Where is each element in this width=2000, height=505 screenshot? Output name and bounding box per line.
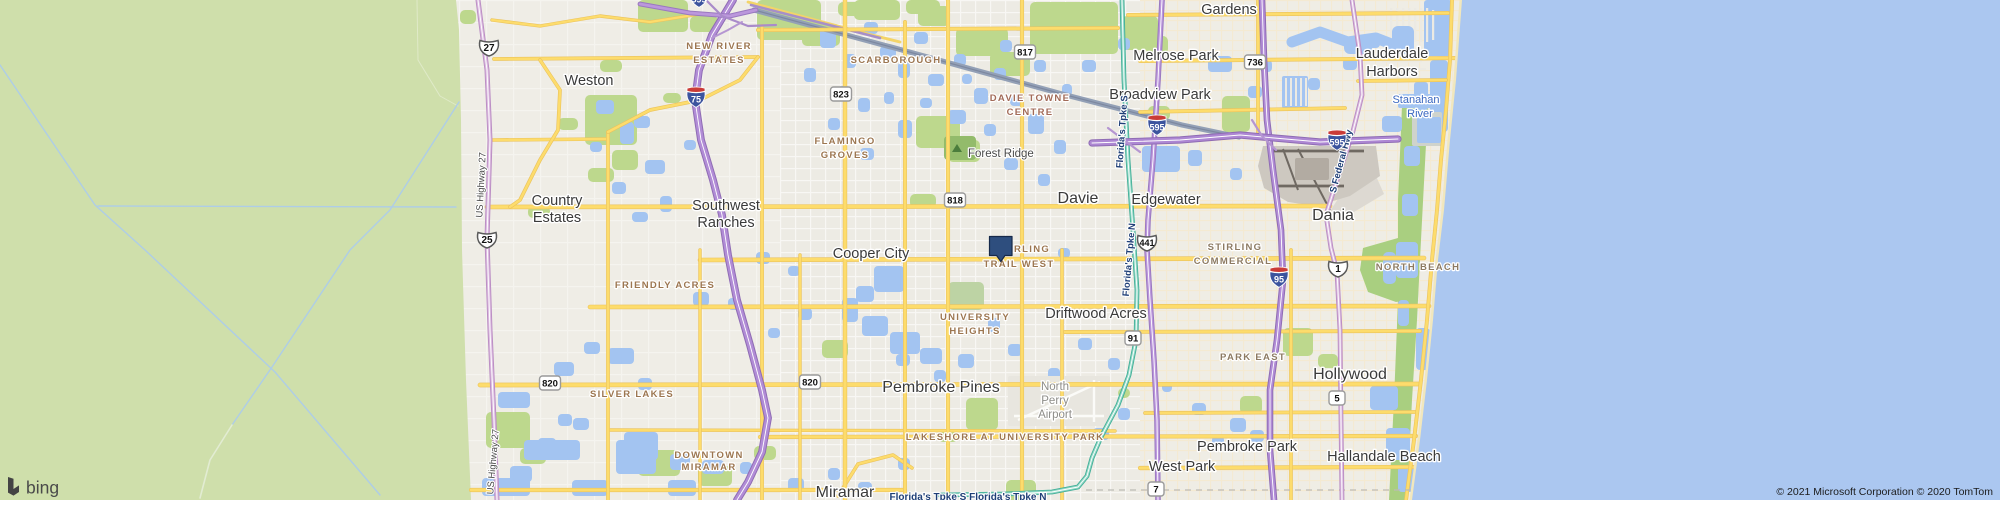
svg-text:River: River xyxy=(1407,108,1433,120)
svg-text:Forest Ridge: Forest Ridge xyxy=(968,148,1034,160)
svg-text:823: 823 xyxy=(833,90,849,101)
svg-text:West Park: West Park xyxy=(1149,459,1216,475)
svg-text:RLING: RLING xyxy=(1014,244,1050,255)
svg-text:NEW RIVER: NEW RIVER xyxy=(686,41,752,52)
svg-text:PARK EAST: PARK EAST xyxy=(1220,352,1286,363)
svg-text:595: 595 xyxy=(1149,122,1164,132)
svg-text:ESTATES: ESTATES xyxy=(693,55,745,66)
svg-text:25: 25 xyxy=(481,235,493,246)
svg-text:LAKESHORE AT UNIVERSITY PARK: LAKESHORE AT UNIVERSITY PARK xyxy=(906,432,1105,443)
svg-text:817: 817 xyxy=(1017,48,1033,59)
svg-text:Pembroke Park: Pembroke Park xyxy=(1197,439,1298,455)
svg-text:Airport: Airport xyxy=(1038,409,1073,421)
svg-text:820: 820 xyxy=(542,379,558,390)
svg-text:Cooper City: Cooper City xyxy=(833,246,910,262)
svg-text:Southwest: Southwest xyxy=(692,198,760,214)
svg-text:NORTH BEACH: NORTH BEACH xyxy=(1376,262,1461,273)
svg-text:Lauderdale: Lauderdale xyxy=(1356,46,1429,62)
svg-text:bing: bing xyxy=(26,478,59,498)
svg-text:Florida's Tpke S Florida's Tpk: Florida's Tpke S Florida's Tpke N xyxy=(889,492,1046,500)
svg-text:Gardens: Gardens xyxy=(1201,2,1257,18)
svg-text:GROVES: GROVES xyxy=(821,150,869,161)
svg-text:Miramar: Miramar xyxy=(816,484,875,500)
svg-text:CENTRE: CENTRE xyxy=(1007,107,1054,118)
svg-text:Driftwood Acres: Driftwood Acres xyxy=(1045,306,1147,322)
svg-text:595: 595 xyxy=(1329,137,1344,147)
svg-text:Melrose Park: Melrose Park xyxy=(1133,48,1219,64)
svg-text:SCARBOROUGH: SCARBOROUGH xyxy=(851,55,942,66)
svg-text:SILVER LAKES: SILVER LAKES xyxy=(590,389,674,400)
svg-text:Hollywood: Hollywood xyxy=(1313,366,1387,383)
svg-text:HEIGHTS: HEIGHTS xyxy=(949,326,1000,337)
svg-text:Perry: Perry xyxy=(1041,395,1069,407)
svg-text:COMMERCIAL: COMMERCIAL xyxy=(1194,256,1272,267)
svg-text:Edgewater: Edgewater xyxy=(1131,192,1200,208)
svg-text:736: 736 xyxy=(1247,58,1263,69)
svg-text:Stanahan: Stanahan xyxy=(1392,94,1439,106)
svg-text:Ranches: Ranches xyxy=(697,215,754,231)
svg-text:Pembroke Pines: Pembroke Pines xyxy=(882,379,999,396)
svg-text:5: 5 xyxy=(1334,394,1340,405)
svg-text:© 2021 Microsoft Corporation ©: © 2021 Microsoft Corporation © 2020 TomT… xyxy=(1776,486,1993,498)
svg-text:MIRAMAR: MIRAMAR xyxy=(681,462,736,473)
svg-text:FRIENDLY ACRES: FRIENDLY ACRES xyxy=(615,280,715,291)
svg-text:820: 820 xyxy=(802,378,818,389)
svg-text:75: 75 xyxy=(691,94,701,104)
svg-text:441: 441 xyxy=(1139,238,1154,248)
svg-text:North: North xyxy=(1041,381,1069,393)
svg-text:7: 7 xyxy=(1153,485,1158,496)
svg-text:1: 1 xyxy=(1335,264,1341,275)
svg-text:Davie: Davie xyxy=(1058,190,1099,207)
svg-text:Country: Country xyxy=(532,193,584,209)
svg-text:Harbors: Harbors xyxy=(1366,64,1418,80)
svg-text:Estates: Estates xyxy=(533,210,581,226)
svg-text:Weston: Weston xyxy=(565,73,614,89)
svg-text:DOWNTOWN: DOWNTOWN xyxy=(674,450,743,461)
svg-text:Hallandale Beach: Hallandale Beach xyxy=(1327,449,1441,465)
svg-text:Dania: Dania xyxy=(1312,207,1354,224)
svg-text:TRAIL WEST: TRAIL WEST xyxy=(984,259,1055,270)
svg-text:UNIVERSITY: UNIVERSITY xyxy=(940,312,1010,323)
svg-text:595: 595 xyxy=(691,0,706,4)
svg-text:27: 27 xyxy=(483,43,495,54)
svg-text:FLAMINGO: FLAMINGO xyxy=(814,136,875,147)
svg-text:95: 95 xyxy=(1274,274,1284,284)
svg-text:818: 818 xyxy=(947,196,963,207)
svg-text:STIRLING: STIRLING xyxy=(1208,242,1263,253)
svg-text:91: 91 xyxy=(1128,334,1139,345)
svg-text:DAVIE TOWNE: DAVIE TOWNE xyxy=(990,93,1070,104)
